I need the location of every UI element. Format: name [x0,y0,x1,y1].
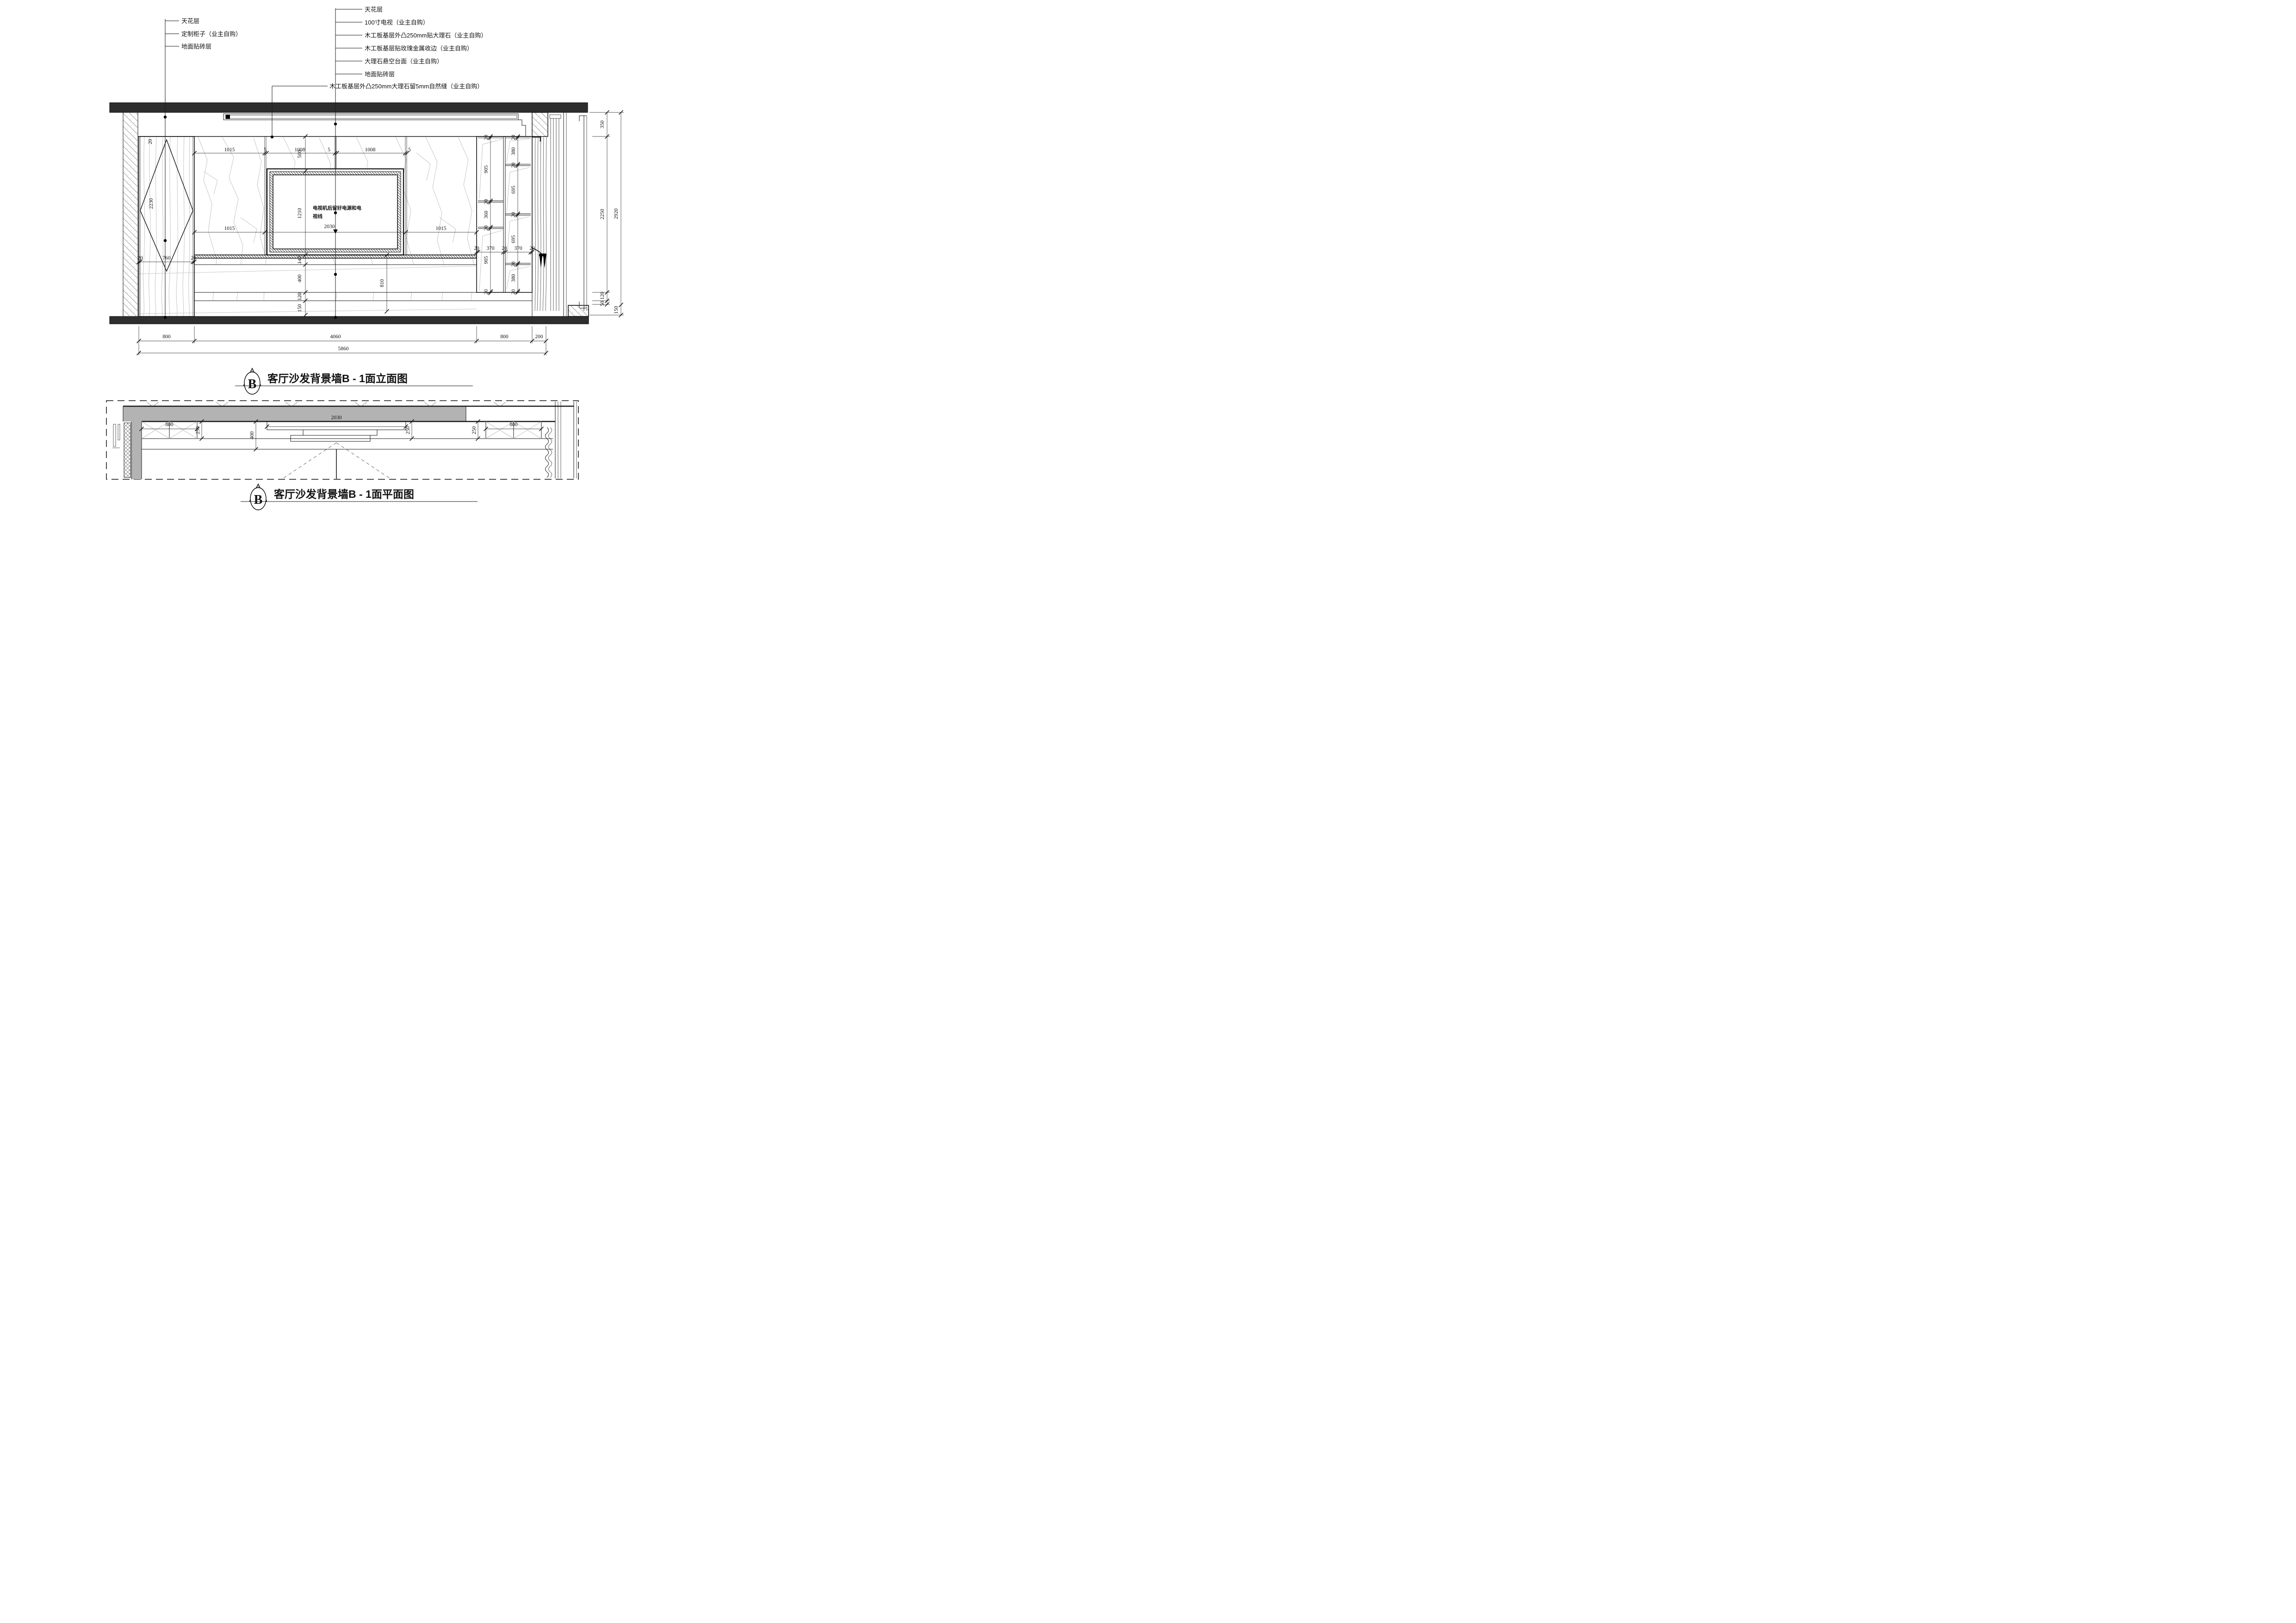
elevation-title-block: B 客厅沙发背景墙B - 1面立面图 [235,368,473,394]
dims-right-columns: 350 2250 120 50 2920 150 [590,111,624,317]
svg-text:400: 400 [249,431,255,440]
svg-text:1015: 1015 [224,147,235,153]
ceiling-beam [110,103,588,112]
svg-text:800: 800 [162,334,171,340]
sheer-track [550,115,561,311]
dims-panel: 20 760 20 2230 20 [137,139,197,264]
tv-note: 电视机后留好电源和电 [313,205,361,211]
svg-text:360: 360 [484,211,489,219]
svg-text:250: 250 [472,426,477,434]
svg-text:120: 120 [600,291,605,300]
svg-text:760: 760 [162,255,171,261]
svg-text:800: 800 [500,334,509,340]
svg-text:2250: 2250 [600,209,605,219]
svg-text:695: 695 [511,186,516,194]
plan-wall [123,406,466,421]
svg-text:视线: 视线 [313,213,323,219]
plan-curtain [546,427,552,477]
plan-door-frame [112,424,120,448]
plan-title: 客厅沙发背景墙B - 1面平面图 [274,488,414,500]
svg-text:2030: 2030 [324,224,335,229]
window-frame [579,116,587,311]
svg-text:5: 5 [408,147,411,153]
callout-label: 定制柜子（业主自购） [181,31,242,37]
svg-text:20: 20 [511,162,516,168]
svg-text:150: 150 [614,306,619,314]
dims-cabinet-col1: 20 905 20 360 20 905 20 [484,135,493,295]
svg-text:800: 800 [165,422,174,427]
svg-text:20: 20 [511,135,516,140]
svg-text:400: 400 [297,274,303,283]
svg-text:120: 120 [297,292,303,301]
svg-text:20: 20 [502,246,507,251]
svg-text:4060: 4060 [330,334,341,340]
section-marker-plan: B [249,484,267,510]
plan-view: 800 250 400 2030 250 250 800 [106,401,578,479]
svg-text:5860: 5860 [338,346,349,352]
svg-text:20: 20 [474,246,479,251]
svg-text:20: 20 [137,255,143,261]
svg-text:2030: 2030 [331,415,342,421]
svg-text:20: 20 [511,212,516,217]
svg-text:20: 20 [148,139,153,144]
svg-text:B: B [248,377,257,391]
callout-label: 木工板基层外凸250mm大理石留5mm自然缝（业主自购） [329,83,483,90]
callout-label: 地面贴砖层 [181,43,211,50]
svg-text:5: 5 [264,147,267,153]
svg-text:695: 695 [511,235,516,243]
svg-text:20: 20 [484,289,489,295]
svg-text:2230: 2230 [149,198,154,209]
wood-feature-panel [139,136,194,316]
svg-text:1008: 1008 [365,147,376,153]
section-marker-elevation: B [243,368,261,394]
svg-text:800: 800 [509,422,518,427]
callout-label: 地面贴砖层 [365,71,395,78]
left-wall-section [123,112,138,316]
svg-text:140: 140 [297,256,303,264]
callout-label: 天花层 [181,18,199,25]
svg-text:810: 810 [379,279,385,287]
svg-text:250: 250 [405,426,411,434]
svg-text:50: 50 [600,301,605,306]
svg-text:20: 20 [511,289,516,295]
svg-text:380: 380 [511,274,516,282]
callout-label: 大理石悬空台面（业主自购） [365,58,443,65]
svg-text:250: 250 [195,426,201,434]
svg-text:20: 20 [511,261,516,267]
dims-cabinet-width: 20 370 20 370 20 [474,246,535,254]
callout-label: 木工板基层贴玫瑰金属收边（业主自购） [365,45,473,52]
callout-label: 100寸电视（业主自购） [365,19,429,26]
svg-text:20: 20 [191,255,196,261]
right-wall-section [532,112,589,316]
svg-text:20: 20 [484,135,489,140]
svg-text:500: 500 [297,150,303,158]
floor-slab [110,316,589,324]
svg-text:20: 20 [484,225,489,231]
svg-text:905: 905 [484,165,489,173]
dims-bottom-rows: 800 4060 800 200 5860 [137,326,548,355]
svg-text:5: 5 [328,147,330,153]
svg-text:380: 380 [511,147,516,155]
plan-title-block: B 客厅沙发背景墙B - 1面平面图 [241,484,478,510]
cad-sheet: 电视机后留好电源和电 视线 [0,0,726,513]
svg-text:370: 370 [486,246,495,251]
curtain-tassel-icon [539,254,546,268]
elevation-title: 客厅沙发背景墙B - 1面立面图 [267,372,408,384]
cove-light-icon [226,115,230,119]
svg-text:200: 200 [535,334,543,340]
plan-window [555,402,577,478]
callout-label: 天花层 [365,6,383,13]
curtain [532,137,546,311]
dims-cabinet-col2: 20 380 20 695 20 695 20 380 20 [511,135,520,295]
curtain-box-icon [532,137,540,142]
callout-left: 天花层 定制柜子（业主自购） 地面贴砖层 [164,18,242,319]
svg-text:B: B [254,493,263,507]
svg-text:1210: 1210 [297,208,303,218]
svg-text:370: 370 [514,246,522,251]
window-sill-block [568,305,589,316]
plan-door-jamb [124,423,130,477]
svg-text:150: 150 [297,304,303,312]
callout-middle: 天花层 100寸电视（业主自购） 木工板基层外凸250mm贴大理石（业主自购） … [334,6,487,319]
svg-text:20: 20 [484,199,489,204]
svg-text:2920: 2920 [614,208,619,219]
svg-text:20: 20 [529,246,535,251]
svg-text:1015: 1015 [224,226,235,231]
callout-label: 木工板基层外凸250mm贴大理石（业主自购） [365,32,487,39]
svg-text:1015: 1015 [436,226,447,231]
drawing-svg: 电视机后留好电源和电 视线 [0,0,726,513]
svg-text:350: 350 [600,120,605,129]
svg-text:905: 905 [484,256,489,264]
ceiling-cove [223,114,526,136]
plan-projection [282,443,391,479]
